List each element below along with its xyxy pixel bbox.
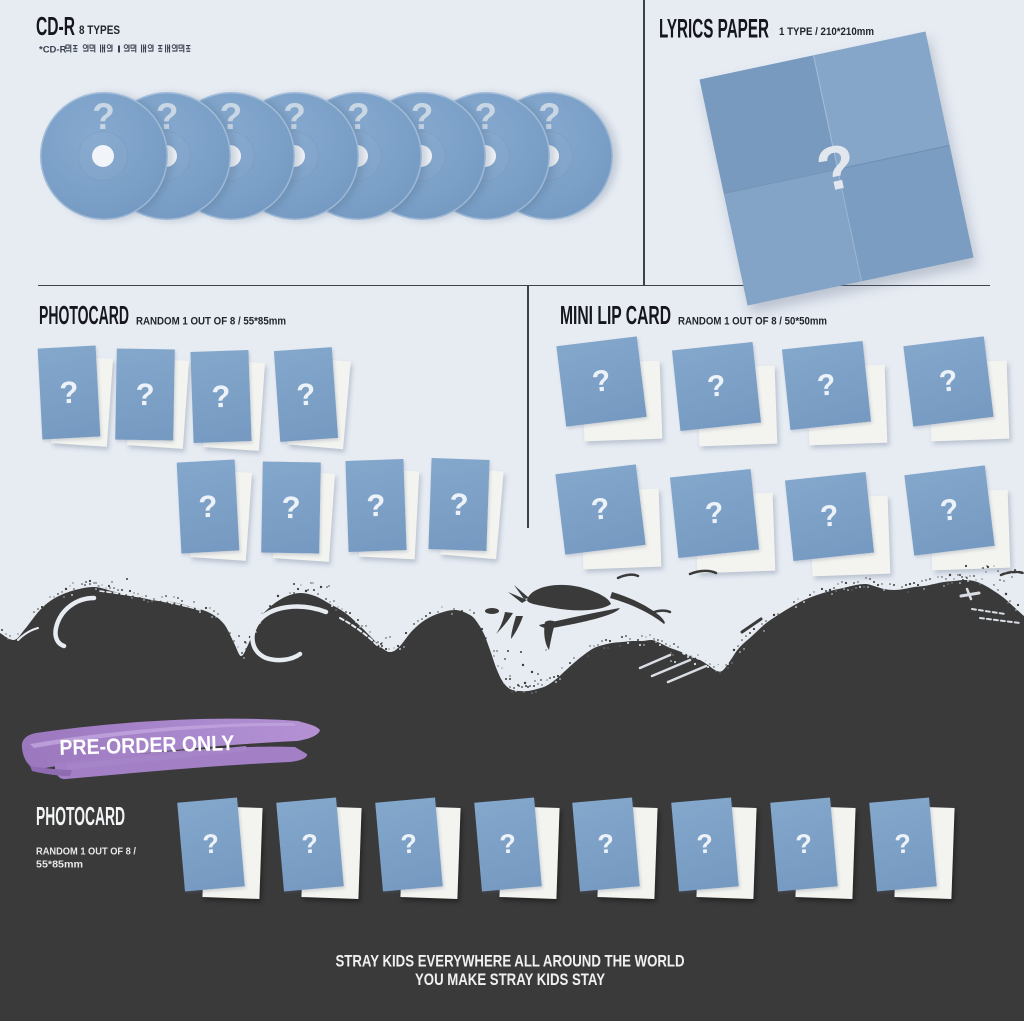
svg-text:PHOTOCARD: PHOTOCARD	[36, 803, 125, 829]
svg-text:RANDOM 1 OUT OF 8 / 55*85mm: RANDOM 1 OUT OF 8 / 55*85mm	[136, 316, 286, 328]
svg-text:CD-R: CD-R	[36, 15, 75, 41]
svg-text:YOU MAKE STRAY KIDS STAY: YOU MAKE STRAY KIDS STAY	[415, 970, 606, 989]
svg-text:RANDOM 1 OUT OF 8 /: RANDOM 1 OUT OF 8 /	[36, 847, 136, 858]
svg-text:55*85mm: 55*85mm	[36, 860, 83, 871]
svg-text:*CD-R: *CD-R	[39, 45, 67, 56]
svg-text:RANDOM 1 OUT OF 8 / 50*50mm: RANDOM 1 OUT OF 8 / 50*50mm	[678, 316, 827, 328]
svg-text:MINI LIP CARD: MINI LIP CARD	[560, 303, 671, 329]
svg-text:PRE-ORDER ONLY: PRE-ORDER ONLY	[59, 731, 235, 760]
svg-text:PHOTOCARD: PHOTOCARD	[39, 303, 129, 329]
svg-text:1 TYPE / 210*210mm: 1 TYPE / 210*210mm	[779, 26, 874, 38]
svg-text:LYRICS PAPER: LYRICS PAPER	[659, 14, 769, 42]
svg-text:8 TYPES: 8 TYPES	[79, 25, 120, 37]
